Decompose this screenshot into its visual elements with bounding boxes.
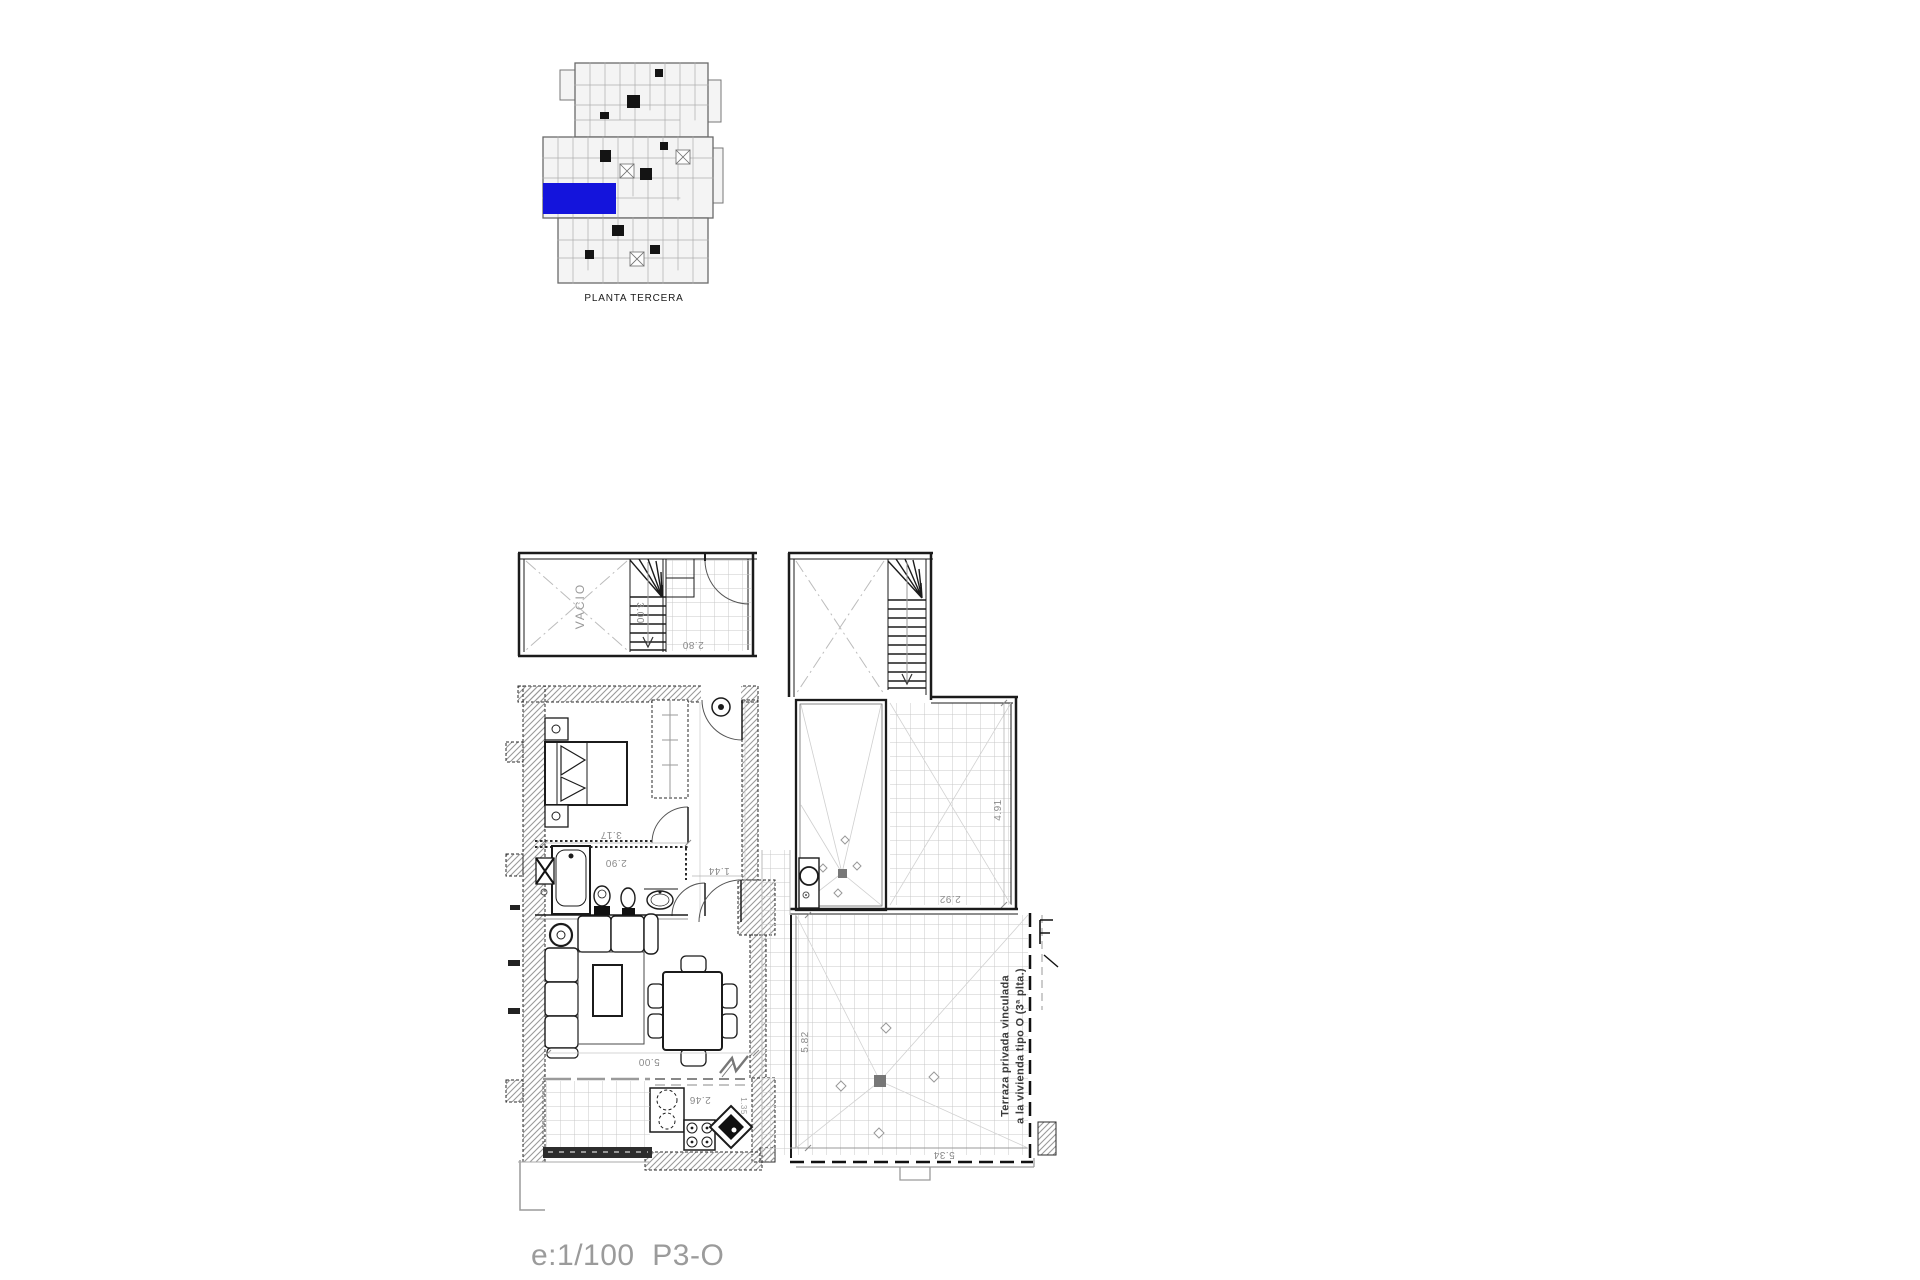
toilet — [594, 886, 610, 915]
landing-tiles — [667, 560, 752, 651]
terrace-drain — [874, 1075, 886, 1087]
dim-terrace-upper-depth: 4.91 — [994, 799, 1004, 820]
gallery-strip — [762, 850, 790, 1155]
ceiling-light-icon — [712, 698, 730, 716]
lower-terrace — [790, 912, 1033, 1162]
dim-terrace-lower-width: 5.34 — [933, 1149, 954, 1159]
dim-terrace-lower-depth: 5.82 — [801, 1031, 811, 1052]
dim-kitchen: 2.46 — [689, 1094, 710, 1104]
scale-text: e:1/100 P3-O — [531, 1241, 724, 1271]
upper-right-block — [788, 553, 933, 700]
key-plan-building — [543, 63, 723, 283]
dim-stair-run: 3.00 — [634, 602, 644, 623]
terrace-label-line2: a la vivienda tipo O (3ª plta.) — [1016, 968, 1027, 1124]
key-plan-label: PLANTA TERCERA — [584, 294, 683, 304]
roof-drain — [838, 869, 847, 878]
section-mark — [720, 1056, 748, 1073]
kitchen — [650, 1079, 752, 1150]
bathtub — [552, 846, 590, 914]
dim-bathroom: 2.90 — [605, 857, 626, 867]
dining-set — [648, 956, 737, 1066]
side-table — [550, 924, 572, 946]
void-label: VACIO — [574, 583, 586, 629]
terrace-label-line1: Terraza privada vinculada — [1001, 975, 1012, 1117]
neighbour-fragments — [1038, 915, 1058, 1155]
bedroom — [535, 700, 691, 847]
fridge — [650, 1088, 684, 1132]
dim-kitchen-depth: 1.35 — [739, 1097, 747, 1115]
dim-terrace-upper-width: 2.92 — [939, 893, 960, 903]
dim-hall: 1.44 — [708, 865, 729, 875]
dim-bedroom: 3.17 — [600, 829, 621, 839]
coffee-table — [593, 965, 622, 1016]
lower-floor-outline — [796, 1158, 1034, 1180]
bedroom-door — [652, 807, 688, 843]
plan-drawing — [0, 0, 1920, 1280]
bed — [545, 742, 627, 805]
dim-landing: 2.80 — [682, 639, 703, 649]
floor-plan-sheet: PLANTA TERCERA VACIO 3.00 2.80 3.17 2.90… — [0, 0, 1920, 1280]
void-cross-right — [796, 561, 884, 694]
wardrobe — [652, 700, 688, 798]
bidet — [621, 888, 635, 915]
stove — [684, 1120, 715, 1150]
water-heater — [799, 858, 819, 908]
dim-living: 5.00 — [638, 1056, 659, 1066]
selected-unit-highlight — [543, 183, 616, 214]
living-room — [545, 914, 759, 1077]
roof-room — [796, 700, 886, 910]
sink — [644, 889, 678, 909]
